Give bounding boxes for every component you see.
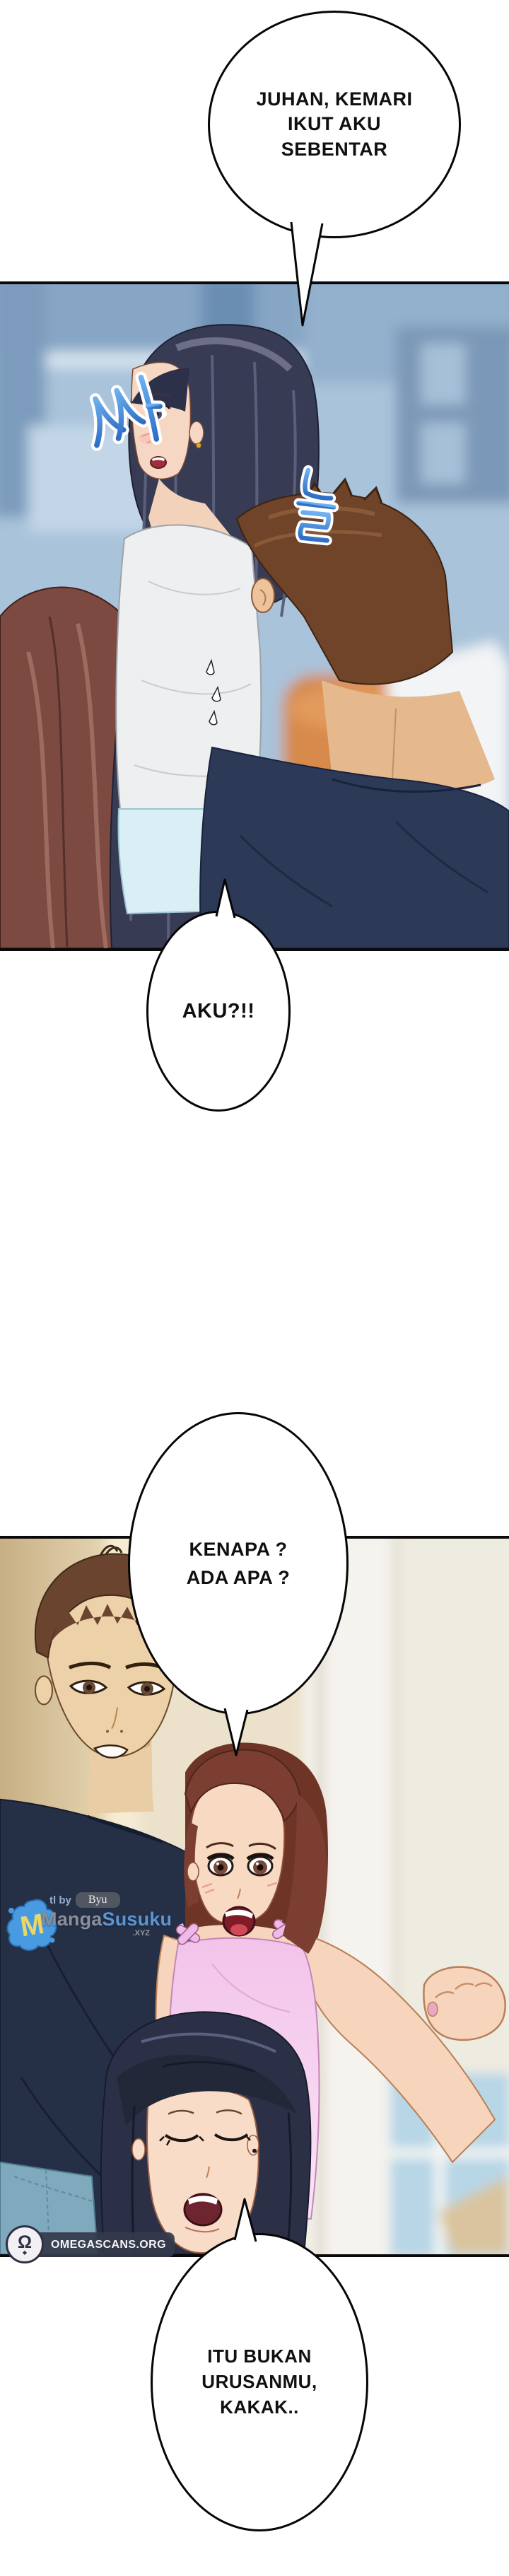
- mangasusuku-wordmark: MangaSusuku: [41, 1908, 154, 1930]
- comic-page: JUHAN, KEMARI IKUT AKU SEBENTAR AKU?!! K…: [0, 0, 509, 2576]
- bubble-4-line: KAKAK..: [220, 2395, 299, 2420]
- omegascans-logo-icon: Ω ◆: [6, 2225, 44, 2263]
- mangasusuku-watermark: M tl by Byu MangaSusuku .XYZ: [6, 1892, 154, 1953]
- woman-face: [191, 1776, 284, 1925]
- bubble-1-line: JUHAN, KEMARI: [256, 87, 412, 112]
- speech-bubble-4: ITU BUKAN URUSANMU, KAKAK..: [151, 2233, 368, 2531]
- bubble-3-tail: [221, 1704, 252, 1759]
- speech-bubble-1: JUHAN, KEMARI IKUT AKU SEBENTAR: [208, 11, 461, 238]
- speech-bubble-3: KENAPA ? ADA APA ?: [128, 1412, 349, 1715]
- bubble-4-tail: [229, 2195, 262, 2244]
- bubble-4-line: URUSANMU,: [201, 2370, 317, 2395]
- girl2-earring: [252, 2149, 257, 2153]
- panel-1: [0, 281, 509, 951]
- woman-fingernail: [428, 2002, 438, 2016]
- bubble-2-line: AKU?!!: [182, 1000, 255, 1023]
- girl-eyes-closed: [101, 2012, 310, 2254]
- panel-1-art: [0, 284, 509, 948]
- omegascans-watermark: OMEGASCANS.ORG Ω ◆: [6, 2225, 126, 2266]
- girl-ear: [189, 421, 204, 444]
- man-ear: [252, 578, 274, 612]
- speech-bubble-2: AKU?!!: [146, 911, 291, 1112]
- juhan-ear: [35, 1676, 52, 1704]
- bubble-1-line: IKUT AKU: [288, 112, 381, 137]
- bubble-2-tail: [212, 877, 240, 921]
- bubble-4-line: ITU BUKAN: [207, 2344, 312, 2370]
- bubble-3-line: KENAPA ?: [189, 1535, 288, 1564]
- tl-by-label: tl by: [49, 1894, 71, 1906]
- bubble-3-line: ADA APA ?: [187, 1563, 291, 1592]
- bubble-1-tail: [284, 216, 327, 333]
- woman-ear: [187, 1863, 199, 1881]
- omegascans-site-label: OMEGASCANS.ORG: [25, 2232, 175, 2257]
- bubble-1-line: SEBENTAR: [281, 137, 388, 163]
- translator-name-badge: Byu: [76, 1892, 120, 1908]
- girl-earring: [197, 443, 201, 448]
